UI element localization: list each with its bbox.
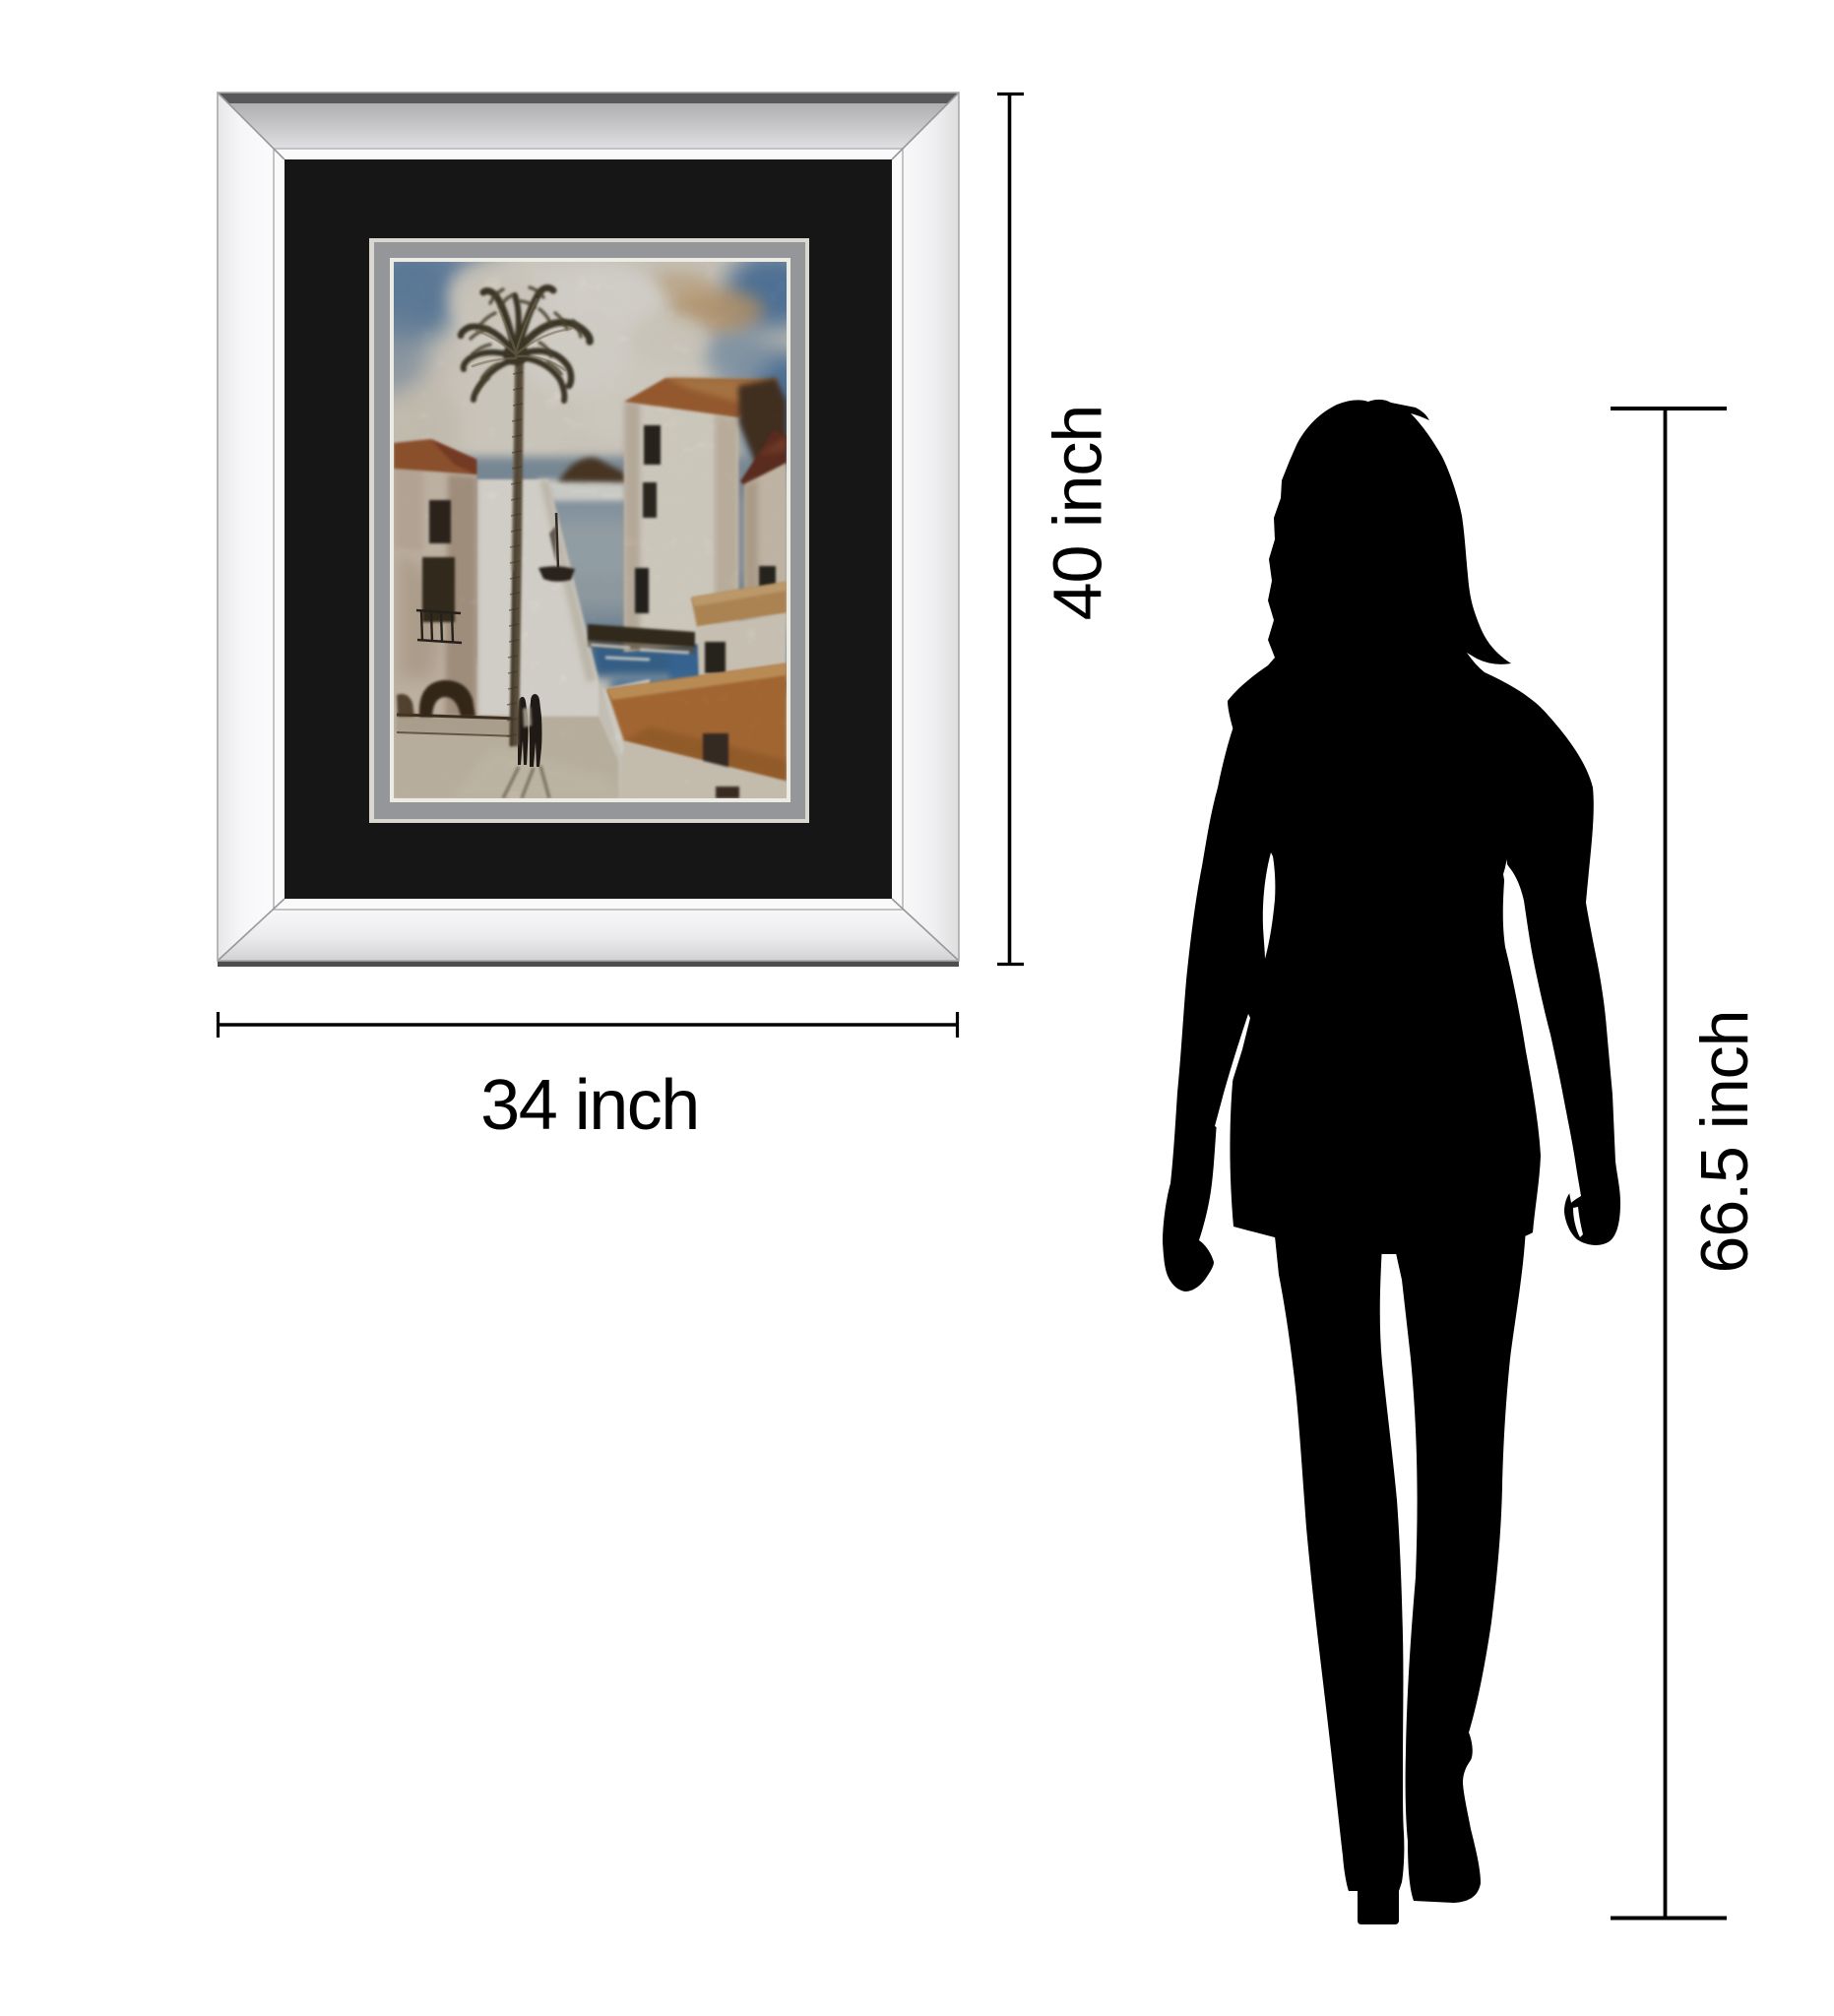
svg-text:34 inch: 34 inch xyxy=(480,1066,699,1145)
svg-text:66.5 inch: 66.5 inch xyxy=(1687,1011,1762,1274)
svg-text:40 inch: 40 inch xyxy=(1039,406,1115,621)
